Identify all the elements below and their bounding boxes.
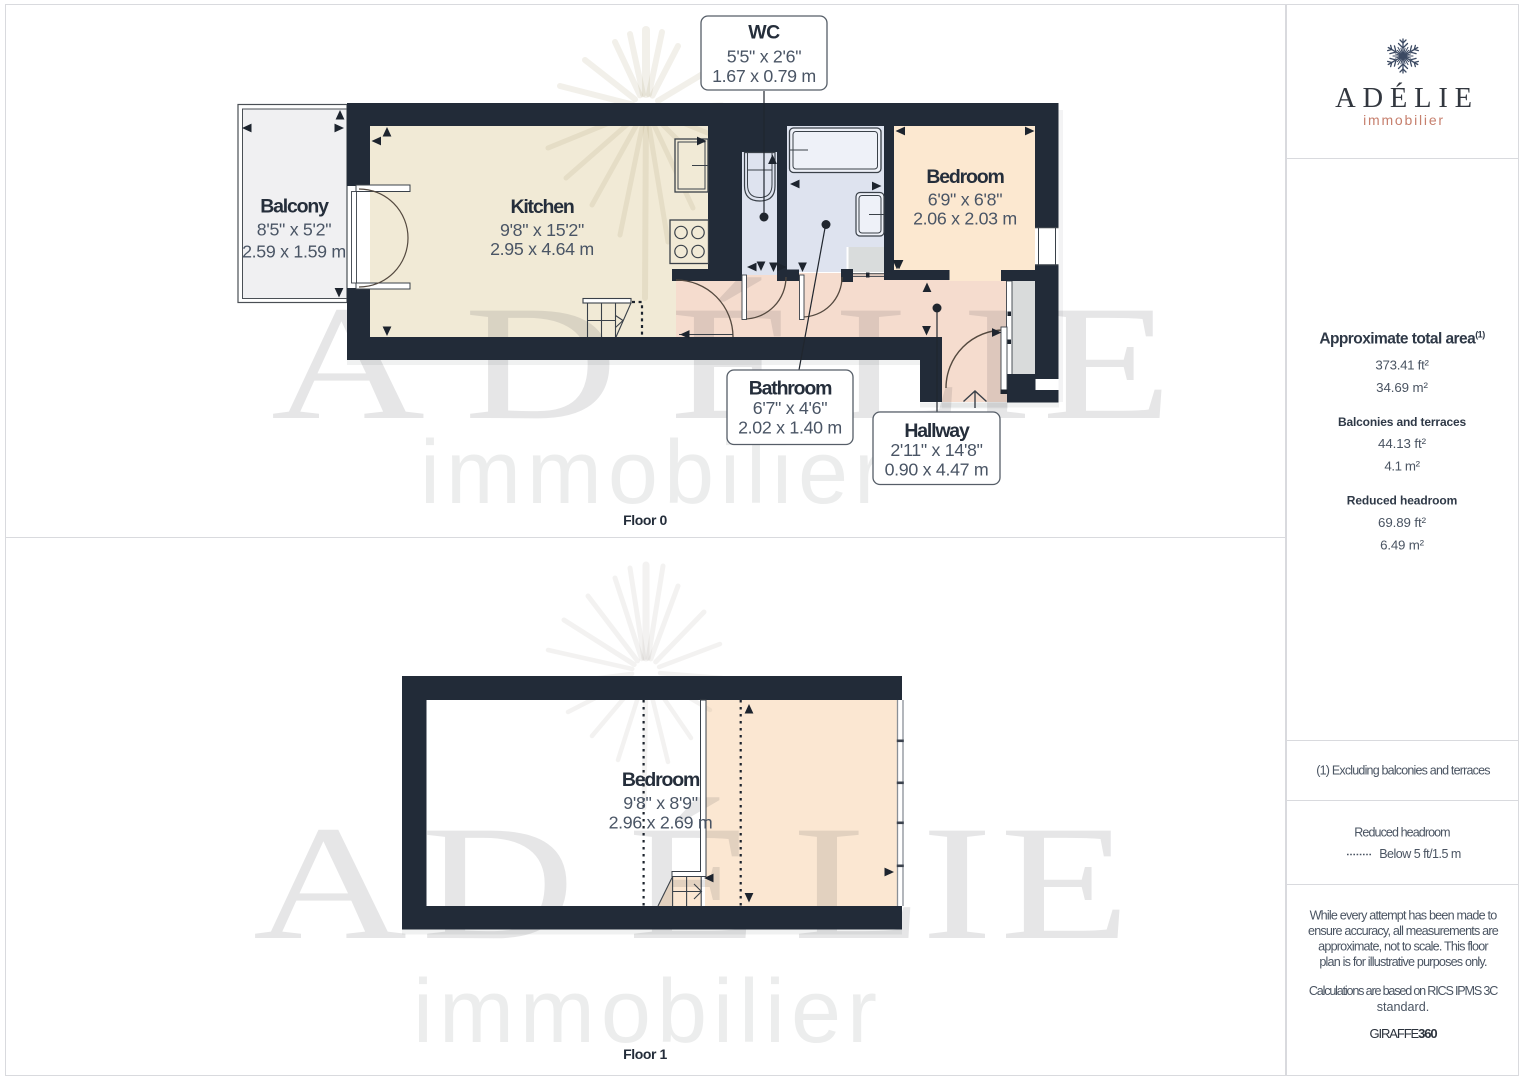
svg-text:9'8" x 15'2": 9'8" x 15'2" — [500, 220, 584, 240]
svg-text:Floor 1: Floor 1 — [623, 1046, 667, 1062]
svg-text:Bedroom: Bedroom — [622, 769, 700, 791]
svg-text:Floor 0: Floor 0 — [623, 512, 667, 528]
svg-text:Calculations are based on RICS: Calculations are based on RICS IPMS 3C — [1309, 984, 1498, 998]
svg-text:Kitchen: Kitchen — [510, 196, 573, 218]
svg-text:approximate, not to scale. Thi: approximate, not to scale. This floor — [1318, 940, 1488, 954]
svg-text:D: D — [421, 793, 575, 974]
svg-text:6'9" x 6'8": 6'9" x 6'8" — [928, 190, 1002, 210]
svg-text:Reduced headroom: Reduced headroom — [1354, 826, 1450, 840]
svg-text:Bathroom: Bathroom — [749, 378, 832, 400]
svg-text:2.96 x 2.69 m: 2.96 x 2.69 m — [609, 813, 713, 833]
svg-text:WC: WC — [748, 22, 780, 44]
svg-text:I: I — [921, 793, 992, 974]
svg-text:Balconies and terraces: Balconies and terraces — [1338, 415, 1467, 429]
svg-text:9'8" x 8'9": 9'8" x 8'9" — [623, 793, 697, 813]
svg-text:Approximate total area(1): Approximate total area(1) — [1319, 330, 1485, 348]
svg-text:44.13 ft²: 44.13 ft² — [1378, 436, 1427, 451]
svg-text:While every attempt has been m: While every attempt has been made to — [1310, 909, 1498, 923]
svg-text:6.49 m²: 6.49 m² — [1380, 537, 1424, 552]
svg-text:5'5" x 2'6": 5'5" x 2'6" — [727, 46, 801, 66]
svg-text:Bedroom: Bedroom — [926, 166, 1004, 188]
svg-text:2.06 x 2.03 m: 2.06 x 2.03 m — [913, 209, 1017, 229]
svg-text:2.02 x 1.40 m: 2.02 x 1.40 m — [738, 418, 842, 438]
svg-text:E: E — [1000, 793, 1130, 974]
svg-text:plan is for illustrative purpo: plan is for illustrative purposes only. — [1319, 955, 1487, 969]
svg-text:A: A — [253, 793, 407, 974]
svg-text:Reduced headroom: Reduced headroom — [1347, 494, 1457, 508]
svg-text:Hallway: Hallway — [904, 420, 970, 442]
svg-text:69.89 ft²: 69.89 ft² — [1378, 515, 1427, 530]
svg-text:0.90 x 4.47 m: 0.90 x 4.47 m — [885, 460, 989, 480]
svg-text:2.95 x 4.64 m: 2.95 x 4.64 m — [490, 239, 594, 259]
svg-text:Below 5 ft/1.5 m: Below 5 ft/1.5 m — [1379, 847, 1461, 861]
svg-text:ensure accuracy, all measureme: ensure accuracy, all measurements are — [1308, 924, 1499, 938]
svg-text:4.1 m²: 4.1 m² — [1384, 459, 1420, 474]
svg-text:2'11" x 14'8": 2'11" x 14'8" — [890, 440, 982, 460]
svg-text:standard.: standard. — [1377, 1000, 1430, 1014]
svg-text:34.69 m²: 34.69 m² — [1376, 380, 1428, 395]
svg-text:8'5" x 5'2": 8'5" x 5'2" — [257, 220, 331, 240]
svg-text:(1) Excluding balconies and te: (1) Excluding balconies and terraces — [1316, 763, 1490, 777]
svg-text:ADÉLIE: ADÉLIE — [1335, 81, 1479, 114]
svg-text:immobilier: immobilier — [1363, 112, 1445, 128]
svg-text:6'7" x 4'6": 6'7" x 4'6" — [753, 398, 827, 418]
svg-text:373.41 ft²: 373.41 ft² — [1375, 357, 1429, 372]
svg-text:Balcony: Balcony — [260, 196, 329, 218]
svg-text:1.67 x 0.79 m: 1.67 x 0.79 m — [712, 66, 816, 86]
svg-text:GIRAFFE360: GIRAFFE360 — [1369, 1026, 1437, 1041]
svg-text:2.59 x 1.59 m: 2.59 x 1.59 m — [242, 242, 346, 262]
